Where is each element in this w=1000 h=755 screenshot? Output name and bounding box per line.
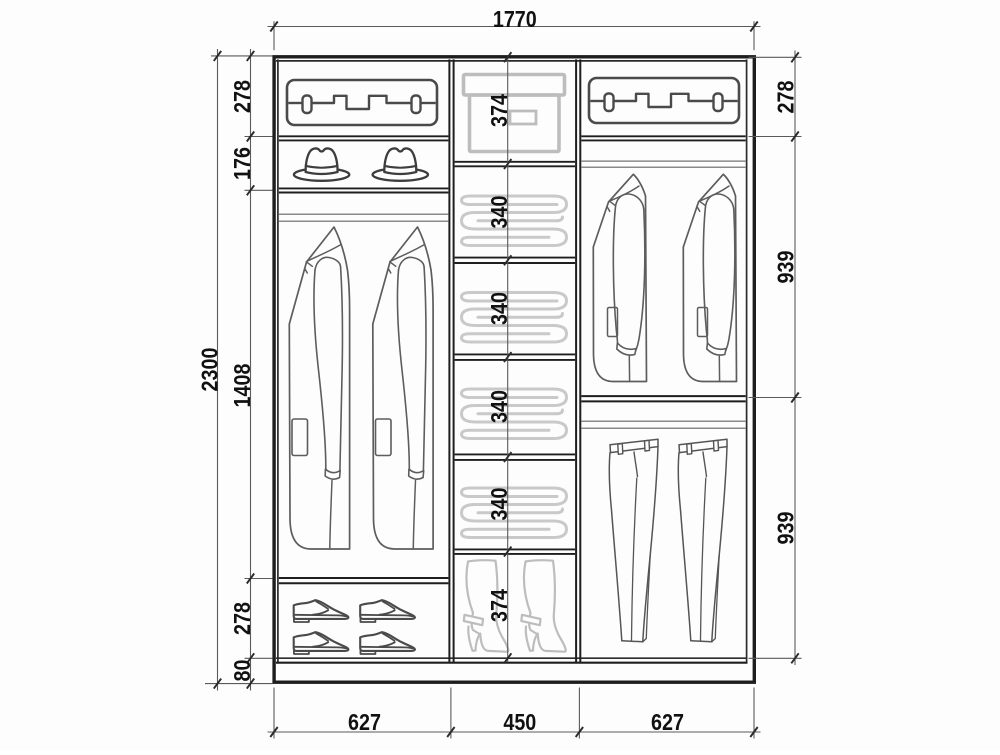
svg-text:1770: 1770: [493, 6, 537, 33]
svg-text:340: 340: [485, 390, 512, 423]
svg-text:1408: 1408: [228, 364, 255, 408]
svg-text:450: 450: [503, 708, 536, 735]
svg-text:939: 939: [772, 251, 799, 284]
svg-text:627: 627: [651, 708, 684, 735]
svg-text:340: 340: [485, 292, 512, 325]
svg-text:374: 374: [485, 94, 512, 127]
svg-text:278: 278: [228, 80, 255, 113]
svg-text:374: 374: [485, 589, 512, 622]
svg-text:340: 340: [485, 488, 512, 521]
svg-text:939: 939: [772, 512, 799, 545]
svg-text:278: 278: [228, 602, 255, 635]
svg-text:278: 278: [772, 81, 799, 114]
svg-text:2300: 2300: [196, 348, 223, 392]
svg-text:176: 176: [228, 147, 255, 180]
svg-text:80: 80: [228, 660, 255, 682]
svg-text:627: 627: [348, 708, 381, 735]
svg-text:340: 340: [485, 196, 512, 229]
